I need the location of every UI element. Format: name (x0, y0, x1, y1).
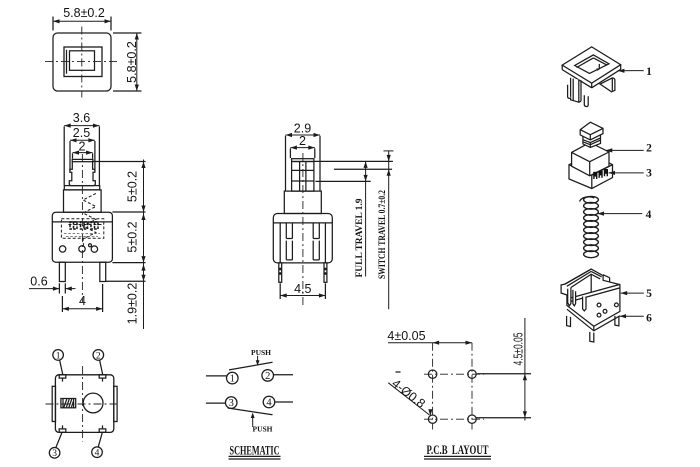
svg-text:3: 3 (229, 398, 234, 409)
svg-text:2: 2 (79, 139, 86, 153)
svg-text:3: 3 (52, 449, 57, 459)
svg-text:SCHEMATIC: SCHEMATIC (230, 443, 280, 457)
svg-text:PUSH: PUSH (251, 348, 271, 357)
svg-text:3: 3 (646, 168, 652, 180)
svg-text:5±0.2: 5±0.2 (126, 171, 140, 202)
svg-text:2: 2 (265, 371, 270, 382)
svg-text:5.8±0.2: 5.8±0.2 (63, 6, 105, 20)
svg-text:5: 5 (646, 288, 652, 300)
svg-text:4: 4 (79, 294, 86, 308)
svg-text:FULL TRAVEL 1.9: FULL TRAVEL 1.9 (355, 198, 365, 277)
svg-text:2: 2 (96, 351, 101, 361)
svg-text:4±0.05: 4±0.05 (387, 329, 425, 343)
svg-text:SWITCH TRAVEL 0.7±0.2: SWITCH TRAVEL 0.7±0.2 (378, 190, 388, 279)
svg-text:4.5: 4.5 (294, 282, 311, 296)
svg-text:P.C.B LAYOUT: P.C.B LAYOUT (427, 443, 489, 457)
svg-text:4-Ø0.8: 4-Ø0.8 (389, 376, 428, 411)
svg-text:2: 2 (646, 143, 652, 155)
svg-text:1: 1 (56, 351, 61, 361)
svg-text:2.5: 2.5 (73, 126, 90, 140)
svg-text:0.6: 0.6 (30, 275, 47, 289)
svg-text:1.9±0.2: 1.9±0.2 (126, 283, 140, 325)
svg-text:3.6: 3.6 (73, 111, 90, 125)
svg-text:1: 1 (230, 374, 235, 385)
svg-text:4.5±0.05: 4.5±0.05 (512, 332, 526, 365)
svg-text:5±0.2: 5±0.2 (126, 221, 140, 252)
svg-text:4: 4 (95, 449, 100, 459)
svg-text:4: 4 (266, 398, 272, 409)
svg-text:2: 2 (299, 134, 306, 148)
svg-text:PUSH: PUSH (252, 425, 272, 434)
svg-text:1: 1 (646, 66, 652, 78)
svg-text:6: 6 (646, 312, 652, 324)
svg-text:4: 4 (646, 209, 652, 221)
svg-text:5.8±0.2: 5.8±0.2 (125, 41, 139, 83)
